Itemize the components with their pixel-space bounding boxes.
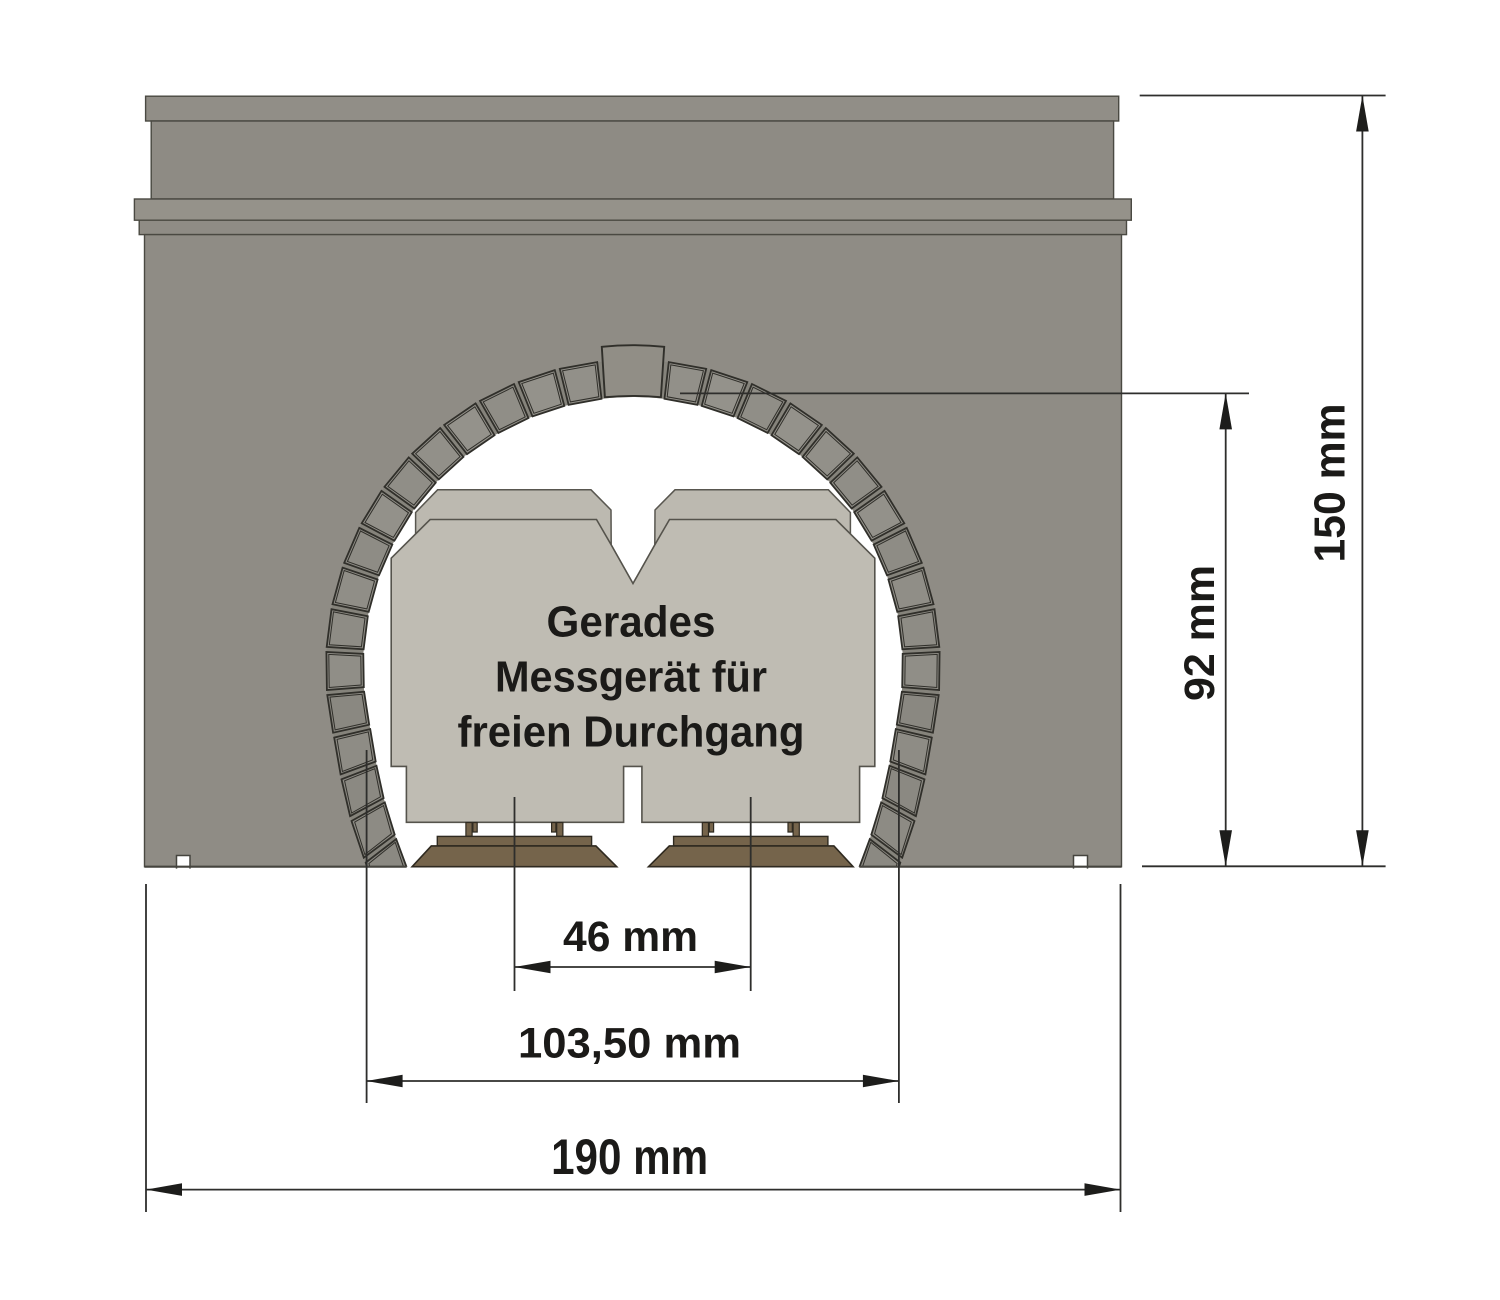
svg-text:Gerades: Gerades	[547, 598, 716, 647]
svg-text:Messgerät für: Messgerät für	[495, 653, 767, 702]
svg-text:103,50 mm: 103,50 mm	[518, 1020, 741, 1068]
svg-text:92 mm: 92 mm	[1176, 565, 1224, 701]
svg-text:150 mm: 150 mm	[1306, 404, 1355, 563]
svg-text:freien Durchgang: freien Durchgang	[458, 708, 805, 757]
svg-text:190 mm: 190 mm	[551, 1129, 708, 1185]
svg-text:46 mm: 46 mm	[563, 913, 698, 961]
